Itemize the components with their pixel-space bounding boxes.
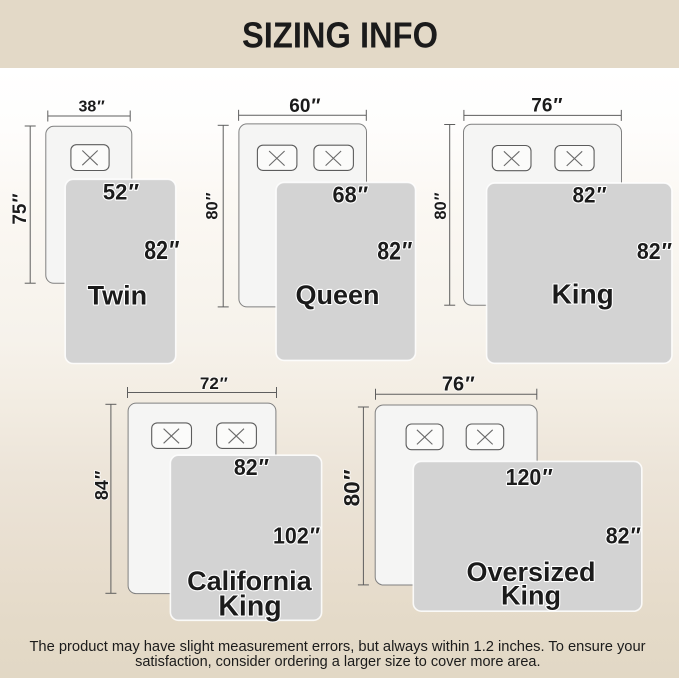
svg-text:120″: 120″: [506, 464, 553, 490]
svg-text:82″: 82″: [377, 237, 412, 265]
svg-text:Queen: Queen: [295, 280, 379, 310]
svg-text:82″: 82″: [234, 454, 269, 480]
svg-text:The product may have slight me: The product may have slight measurement …: [29, 639, 645, 655]
svg-text:SIZING INFO: SIZING INFO: [242, 15, 438, 56]
svg-text:82″: 82″: [606, 522, 641, 548]
svg-text:82″: 82″: [573, 182, 607, 207]
svg-text:102″: 102″: [273, 523, 321, 549]
svg-text:Twin: Twin: [88, 281, 147, 311]
svg-text:King: King: [501, 580, 561, 610]
svg-text:King: King: [552, 279, 614, 310]
svg-text:satisfaction, consider orderin: satisfaction, consider ordering a larger…: [135, 654, 540, 670]
svg-text:King: King: [218, 591, 281, 623]
svg-text:75″: 75″: [10, 193, 31, 224]
svg-text:80″: 80″: [203, 192, 221, 219]
svg-text:82″: 82″: [144, 237, 179, 265]
svg-text:82″: 82″: [637, 238, 672, 264]
svg-text:80″: 80″: [432, 192, 450, 219]
svg-text:76″: 76″: [442, 374, 475, 396]
svg-text:72″: 72″: [200, 374, 228, 393]
svg-text:52″: 52″: [103, 179, 139, 204]
svg-text:84″: 84″: [92, 470, 112, 500]
svg-text:60″: 60″: [289, 96, 320, 117]
svg-text:38″: 38″: [78, 99, 105, 116]
svg-text:68″: 68″: [333, 182, 369, 208]
svg-text:80″: 80″: [339, 469, 364, 506]
svg-text:76″: 76″: [531, 96, 562, 117]
